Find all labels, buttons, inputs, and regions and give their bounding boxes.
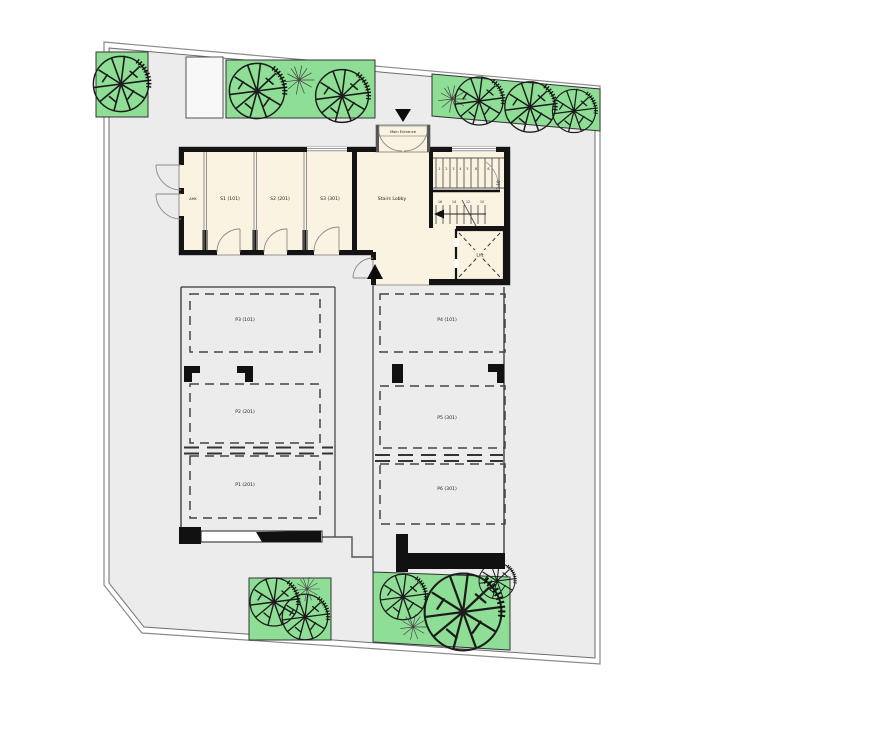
planter-top-left (93, 52, 148, 117)
parking-label-p3: P3 (101) (235, 317, 255, 323)
room-label-s1: S1 (101) (220, 196, 240, 202)
planter-bottom-left (249, 577, 331, 640)
svg-text:4: 4 (459, 167, 461, 171)
parking-label-p2: P2 (201) (235, 409, 255, 415)
parking-label-p4: P4 (101) (437, 317, 457, 323)
room-label-s3: S3 (301) (320, 196, 340, 202)
svg-text:14: 14 (452, 200, 456, 204)
floor-plan-page: P3 (101) P2 (201) P1 (201) P4 (101) P5 (… (0, 0, 869, 753)
planter-bottom-right (373, 563, 515, 650)
room-label-s2: S2 (201) (270, 196, 290, 202)
svg-text:6: 6 (475, 167, 477, 171)
room-label-stairs-lobby: Stairs Lobby (378, 196, 407, 202)
svg-text:10: 10 (480, 200, 484, 204)
main-entrance-label: Main Entrance (390, 130, 417, 134)
parking-label-p6: P6 (301) (437, 486, 457, 492)
lift-label: Lift (476, 253, 483, 259)
floor-plan-drawing: P3 (101) P2 (201) P1 (201) P4 (101) P5 (… (0, 0, 869, 753)
svg-text:3: 3 (452, 167, 454, 171)
svg-text:8: 8 (487, 167, 489, 171)
svg-text:12: 12 (466, 200, 470, 204)
svg-text:1: 1 (438, 167, 440, 171)
site-boundary (104, 42, 600, 664)
planter-empty (186, 57, 223, 118)
svg-text:16: 16 (438, 200, 442, 204)
parking-label-p5: P5 (301) (437, 415, 457, 421)
room-label-ahk: AHK (189, 197, 197, 201)
stair-dimension-label: 2.10 (496, 180, 501, 190)
column (392, 364, 403, 383)
parking-label-p1: P1 (201) (235, 482, 255, 488)
svg-text:5: 5 (466, 167, 468, 171)
planter-top-middle (226, 60, 375, 122)
svg-text:2: 2 (445, 167, 447, 171)
site-area (109, 48, 595, 658)
